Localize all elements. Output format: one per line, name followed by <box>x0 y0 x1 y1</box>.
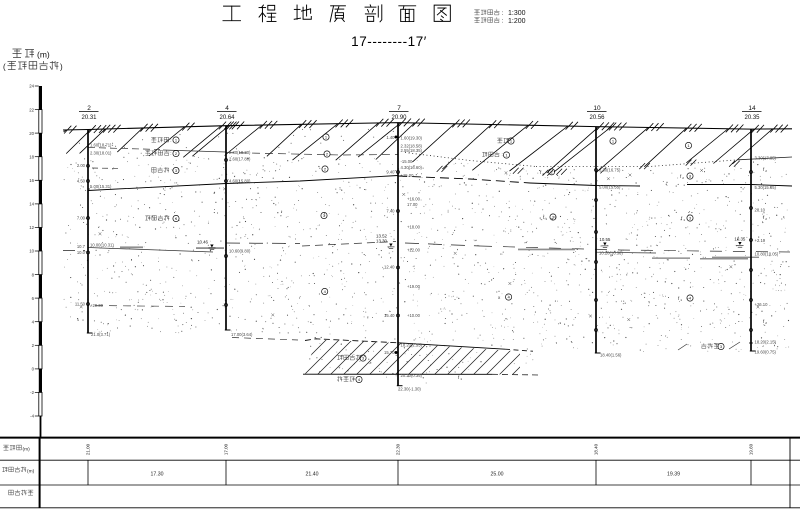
svg-text:2.00: 2.00 <box>77 163 86 168</box>
svg-text:10.20(10.36): 10.20(10.36) <box>599 251 623 256</box>
svg-text:10.00(10.31): 10.00(10.31) <box>90 243 114 248</box>
svg-text:19.60: 19.60 <box>749 443 754 455</box>
svg-text:2: 2 <box>682 176 684 180</box>
svg-text:21.40: 21.40 <box>306 472 319 478</box>
svg-text:18.40: 18.40 <box>594 443 599 455</box>
svg-text:20.56: 20.56 <box>589 115 605 121</box>
svg-text:5.30(15.85): 5.30(15.85) <box>755 185 777 190</box>
svg-text:25.00: 25.00 <box>491 472 504 478</box>
svg-text::: : <box>170 138 171 143</box>
svg-text:17--------17′: 17--------17′ <box>351 34 427 49</box>
svg-text:4: 4 <box>225 105 229 112</box>
svg-text:16: 16 <box>29 178 34 183</box>
svg-text:1.60(19.30): 1.60(19.30) <box>401 136 423 141</box>
svg-text:+10.00: +10.00 <box>407 313 421 318</box>
svg-text:21.00: 21.00 <box>86 443 91 455</box>
svg-text:3.30(16.75): 3.30(16.75) <box>599 168 621 173</box>
svg-text:17.00: 17.00 <box>407 202 418 207</box>
svg-text:+19.00: +19.00 <box>407 284 421 289</box>
svg-text:2.55(18.35): 2.55(18.35) <box>401 148 423 153</box>
svg-text:4.30(16.60): 4.30(16.60) <box>401 165 423 170</box>
svg-text:2: 2 <box>542 172 544 176</box>
svg-text:-4: -4 <box>30 414 34 419</box>
svg-text:13.30: 13.30 <box>376 238 388 243</box>
svg-text:19.60(0.75): 19.60(0.75) <box>755 350 777 355</box>
svg-text:1.60(18.71): 1.60(18.71) <box>90 143 112 148</box>
svg-text:12.40: 12.40 <box>384 265 395 270</box>
svg-text:17.00(3.64): 17.00(3.64) <box>231 332 253 337</box>
svg-text:5.00(15.31): 5.00(15.31) <box>90 184 112 189</box>
svg-text:14: 14 <box>29 202 34 207</box>
svg-text:10.0: 10.0 <box>77 250 86 255</box>
svg-text:2: 2 <box>765 321 767 325</box>
svg-text:10.55: 10.55 <box>599 237 611 242</box>
svg-text:5.00(15.55): 5.00(15.55) <box>599 185 621 190</box>
svg-text:+18.00: +18.00 <box>407 225 421 230</box>
svg-text:2: 2 <box>765 217 767 221</box>
svg-text:10: 10 <box>29 249 34 254</box>
svg-text:+26.10: +26.10 <box>755 302 769 307</box>
svg-text:20: 20 <box>29 131 34 136</box>
svg-text:22.30: 22.30 <box>396 443 401 455</box>
svg-text:17.00: 17.00 <box>224 443 229 455</box>
svg-text:20.35: 20.35 <box>744 115 760 121</box>
svg-text:9.40: 9.40 <box>386 170 395 175</box>
svg-text:4.60(15.80): 4.60(15.80) <box>229 179 251 184</box>
svg-text:15.70: 15.70 <box>384 350 395 355</box>
svg-text:1.40: 1.40 <box>386 135 395 140</box>
svg-text::: : <box>170 151 171 156</box>
svg-text:3.30(17.85): 3.30(17.85) <box>755 156 777 161</box>
svg-text:7.40: 7.40 <box>386 209 395 214</box>
svg-text:10.60(9.80): 10.60(9.80) <box>229 249 251 254</box>
svg-text:1: 1 <box>683 218 685 222</box>
svg-text:17.30: 17.30 <box>151 472 164 478</box>
svg-text:): ) <box>60 63 63 72</box>
svg-text:18: 18 <box>29 154 34 159</box>
svg-text:18.40(1.56): 18.40(1.56) <box>600 353 622 358</box>
svg-text:+16.00: +16.00 <box>407 197 421 202</box>
svg-text:1: 1 <box>545 217 547 221</box>
svg-text:10.80(10.05): 10.80(10.05) <box>755 252 779 257</box>
svg-text:(: ( <box>3 63 6 72</box>
svg-text:2.60(17.80): 2.60(17.80) <box>229 157 251 162</box>
svg-text:(m): (m) <box>37 50 50 60</box>
svg-text:(m): (m) <box>23 447 31 453</box>
svg-text:18.20(2.15): 18.20(2.15) <box>755 340 777 345</box>
svg-text:2.30(18.30): 2.30(18.30) <box>229 150 251 155</box>
svg-text:15.40: 15.40 <box>384 313 395 318</box>
svg-text:20.64: 20.64 <box>219 115 235 121</box>
svg-text:20.31: 20.31 <box>81 115 97 121</box>
svg-text:21.0(3.71): 21.0(3.71) <box>91 332 111 337</box>
svg-text:-2: -2 <box>30 390 34 395</box>
svg-text:10.35: 10.35 <box>734 236 746 241</box>
svg-text:+15.00: +15.00 <box>401 173 415 178</box>
svg-text:10: 10 <box>593 105 601 112</box>
svg-text:28.10: 28.10 <box>755 208 766 213</box>
svg-text:22: 22 <box>29 107 34 112</box>
svg-text:22.30(-1.30): 22.30(-1.30) <box>398 387 421 392</box>
svg-text:-15.00: -15.00 <box>401 159 414 164</box>
svg-text:1: 1 <box>460 377 462 381</box>
svg-text:24: 24 <box>29 84 34 89</box>
svg-text:10.46: 10.46 <box>197 239 209 244</box>
svg-text:20.30(0.35): 20.30(0.35) <box>401 373 423 378</box>
svg-text:1:200: 1:200 <box>508 18 526 25</box>
svg-text::: : <box>502 152 503 157</box>
svg-text:2: 2 <box>765 169 767 173</box>
svg-text:7: 7 <box>397 105 401 112</box>
svg-text:7.00: 7.00 <box>77 216 86 221</box>
svg-text:+2.10: +2.10 <box>755 238 766 243</box>
svg-text:20.90: 20.90 <box>391 115 407 121</box>
svg-text:(m): (m) <box>27 469 35 475</box>
svg-text:2: 2 <box>87 105 91 112</box>
svg-text:4.50: 4.50 <box>77 179 86 184</box>
svg-text:10.7: 10.7 <box>77 244 86 249</box>
svg-text:14: 14 <box>748 105 756 112</box>
svg-text:1:300: 1:300 <box>508 10 526 17</box>
svg-text:11.50: 11.50 <box>75 302 86 307</box>
svg-text:1: 1 <box>680 298 682 302</box>
svg-text:19.39: 19.39 <box>667 472 680 478</box>
svg-text:2.30(18.01): 2.30(18.01) <box>90 151 112 156</box>
svg-text:+12.00: +12.00 <box>407 248 421 253</box>
svg-text:18.20(2.55): 18.20(2.55) <box>401 343 423 348</box>
svg-text:12: 12 <box>29 225 34 230</box>
svg-text:+20.30: +20.30 <box>90 303 104 308</box>
